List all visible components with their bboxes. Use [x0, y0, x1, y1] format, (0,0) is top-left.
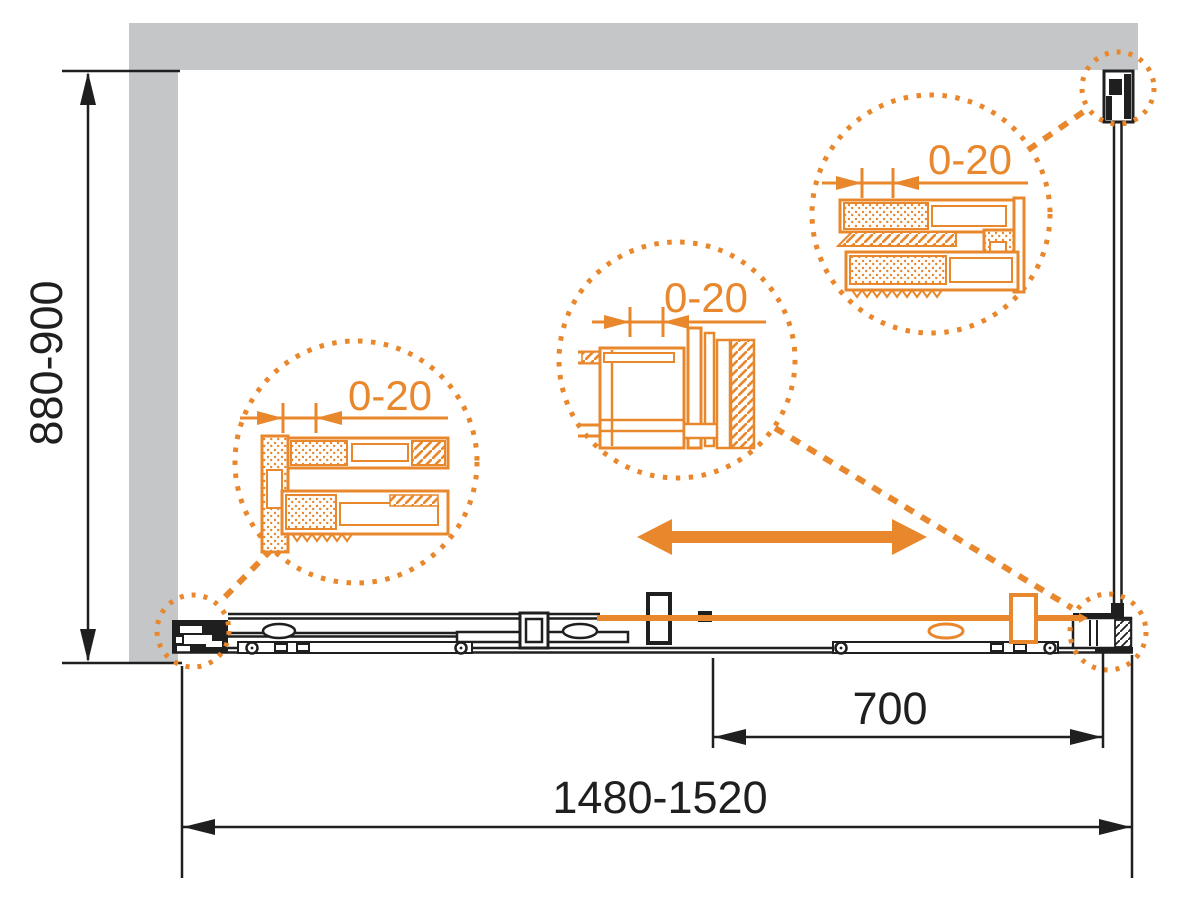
callout-left: 0-20	[235, 341, 477, 583]
wall-sections	[129, 23, 1138, 663]
callout-top-right-label: 0-20	[928, 136, 1012, 183]
door-dim-arrow-left	[714, 729, 746, 745]
bottom-track-assembly	[172, 594, 1133, 654]
door-travel-dimension: 700	[713, 650, 1103, 748]
wall-section-top	[129, 23, 1138, 70]
callout-top-right: 0-20	[812, 95, 1050, 333]
door-side-profile	[1011, 595, 1036, 642]
callout-middle: 0-20	[559, 242, 795, 478]
height-dimension-label: 880-900	[21, 280, 72, 445]
door-travel-dimension-label: 700	[852, 683, 927, 734]
width-dimension-label: 1480-1520	[552, 772, 767, 823]
shower-enclosure-installation-diagram: 880-900	[0, 0, 1192, 900]
width-dim-arrow-right	[1099, 819, 1131, 835]
callout-left-label: 0-20	[348, 372, 432, 419]
connector-left	[220, 549, 272, 602]
callout-middle-profile	[578, 328, 754, 448]
cap-oval-middle	[563, 624, 597, 638]
roller-carriage-left	[238, 642, 472, 654]
left-wall-profile	[172, 620, 228, 653]
wall-hatch-block	[1115, 620, 1131, 647]
width-dim-arrow-left	[183, 819, 215, 835]
connector-middle	[775, 428, 1072, 608]
callout-left-profile	[262, 436, 448, 552]
door-dim-arrow-right	[1070, 729, 1102, 745]
drawing-canvas: 880-900	[0, 0, 1192, 900]
slide-direction-arrow	[637, 519, 927, 555]
cap-oval-left	[263, 624, 295, 638]
connector-top-right	[1028, 108, 1089, 150]
door-clamp-bracket	[520, 613, 548, 648]
callout-top-right-profile	[838, 198, 1024, 297]
width-dimension: 1480-1520	[182, 655, 1132, 878]
callout-middle-label: 0-20	[664, 274, 748, 321]
glass-bottom-clamp	[1111, 603, 1124, 617]
wall-section-left	[129, 23, 178, 663]
height-dim-arrow-down	[80, 629, 96, 662]
height-dim-arrow-up	[80, 72, 96, 105]
fixed-panel-top-bracket	[1104, 71, 1133, 122]
fixed-glass-panel	[1104, 71, 1133, 617]
door-handle	[929, 624, 963, 638]
